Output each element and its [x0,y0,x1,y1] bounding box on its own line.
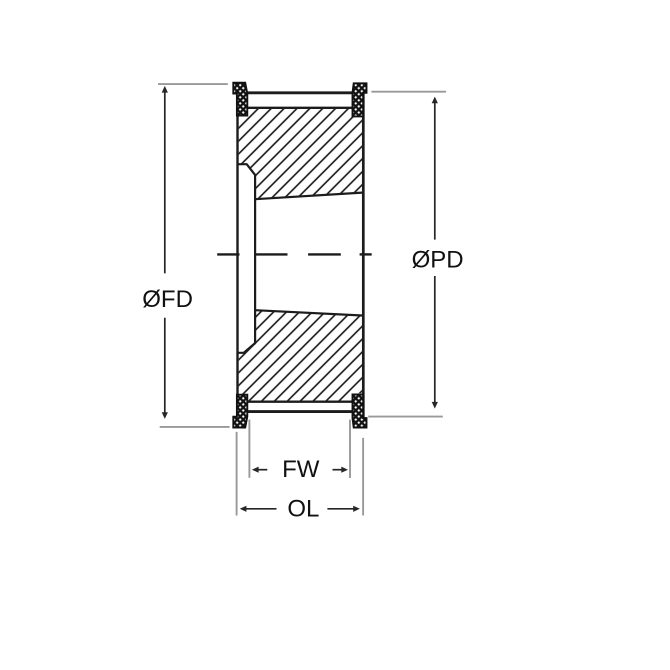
svg-text:ØFD: ØFD [142,286,193,313]
svg-text:OL: OL [287,495,319,522]
svg-text:FW: FW [282,456,320,483]
svg-text:ØPD: ØPD [412,246,464,273]
